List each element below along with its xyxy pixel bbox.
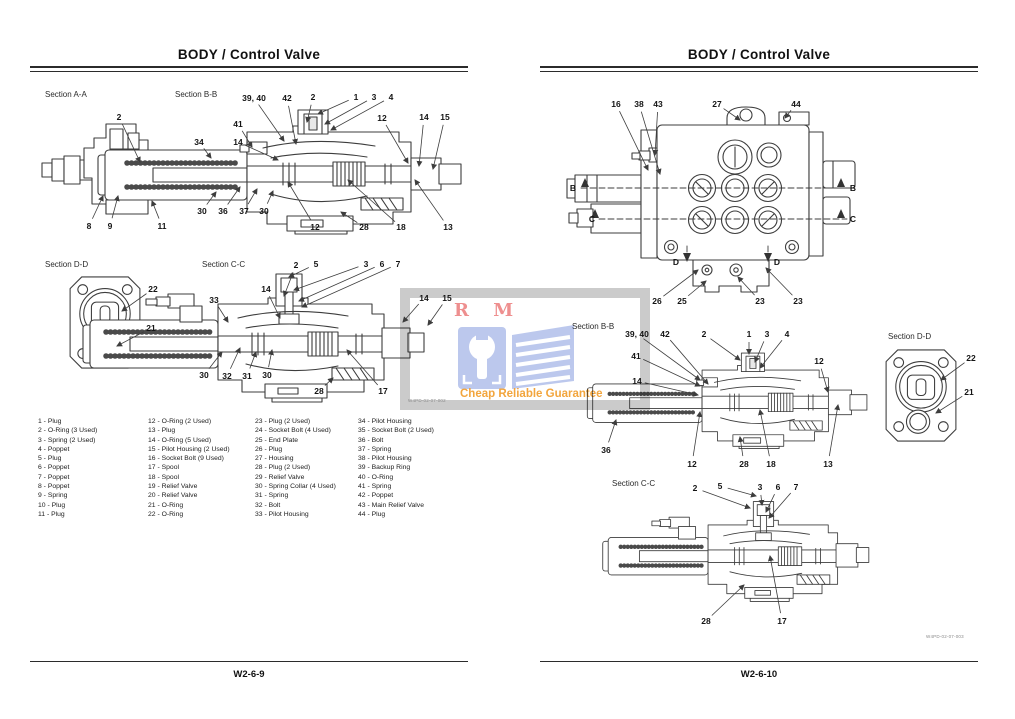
page-number-right: W2-6-10 [540, 669, 978, 680]
part-item: 41 - Spring [358, 482, 473, 491]
page-number-left: W2-6-9 [30, 669, 468, 680]
callout-2: 2 [693, 483, 698, 493]
callout-2: 2 [294, 260, 299, 270]
part-item: 9 - Spring [38, 491, 148, 500]
part-item: 23 - Plug (2 Used) [255, 417, 358, 426]
callout-13: 13 [823, 459, 832, 469]
callout-42: 42 [282, 93, 291, 103]
part-item: 44 - Plug [358, 510, 473, 519]
callout-28: 28 [739, 459, 748, 469]
header-rule-right [540, 66, 978, 72]
callout-3: 3 [364, 259, 369, 269]
part-item: 13 - Plug [148, 426, 255, 435]
section-bb-sketch-left [95, 106, 465, 241]
section-label: Section C-C [612, 479, 655, 488]
parts-column: 34 - Pilot Housing35 - Socket Bolt (2 Us… [358, 417, 473, 519]
part-item: 17 - Spool [148, 463, 255, 472]
watermark-tagline: Cheap Reliable Guarantee [460, 388, 603, 400]
callout-2: 2 [311, 92, 316, 102]
part-item: 42 - Poppet [358, 491, 473, 500]
part-item: 6 - Poppet [38, 463, 148, 472]
callout-7: 7 [794, 482, 799, 492]
section-label: Section C-C [202, 260, 245, 269]
part-item: 2 - O-Ring (3 Used) [38, 426, 148, 435]
part-item: 22 - O-Ring [148, 510, 255, 519]
page-title-right: BODY / Control Valve [540, 47, 978, 62]
part-item: 8 - Poppet [38, 482, 148, 491]
callout-7: 7 [396, 259, 401, 269]
section-dd-sketch-right [884, 348, 958, 443]
external-view-sketch-right [565, 100, 860, 300]
parts-column: 12 - O-Ring (2 Used)13 - Plug14 - O-Ring… [148, 417, 255, 519]
part-item: 20 - Relief Valve [148, 491, 255, 500]
callout-3: 3 [758, 482, 763, 492]
callout-1: 1 [747, 329, 752, 339]
manual-spread: BODY / Control Valve W2-6-9 BODY / Contr… [0, 0, 1015, 719]
drawing-number-right: W4PD-02-07-003 [926, 634, 964, 639]
callout-28: 28 [701, 616, 710, 626]
callout-18: 18 [766, 459, 775, 469]
part-item: 31 - Spring [255, 491, 358, 500]
parts-column: 23 - Plug (2 Used)24 - Socket Bolt (4 Us… [255, 417, 358, 519]
part-item: 30 - Spring Collar (4 Used) [255, 482, 358, 491]
part-item: 7 - Poppet [38, 473, 148, 482]
callout-22: 22 [966, 353, 975, 363]
callout-17: 17 [777, 616, 786, 626]
part-item: 18 - Spool [148, 473, 255, 482]
callout-6: 6 [776, 482, 781, 492]
header-rule-left [30, 66, 468, 72]
callout-39, 40: 39, 40 [242, 93, 266, 103]
callout-1: 1 [354, 92, 359, 102]
watermark: R M Cheap Reliable Guarantee [400, 288, 650, 410]
drawing-number-left: W4PD-02-07-002 [408, 398, 446, 403]
section-cc-sketch-right [600, 500, 870, 603]
part-item: 25 - End Plate [255, 436, 358, 445]
section-label: Section B-B [175, 90, 217, 99]
part-item: 32 - Bolt [255, 501, 358, 510]
part-item: 29 - Relief Valve [255, 473, 358, 482]
callout-5: 5 [314, 259, 319, 269]
page-title-left: BODY / Control Valve [30, 47, 468, 62]
callout-2: 2 [702, 329, 707, 339]
part-item: 26 - Plug [255, 445, 358, 454]
callout-6: 6 [380, 259, 385, 269]
part-item: 24 - Socket Bolt (4 Used) [255, 426, 358, 435]
callout-5: 5 [718, 481, 723, 491]
watermark-brand: R M [454, 300, 522, 321]
part-item: 27 - Housing [255, 454, 358, 463]
part-item: 15 - Pilot Housing (2 Used) [148, 445, 255, 454]
callout-21: 21 [964, 387, 973, 397]
section-label: Section D-D [888, 332, 931, 341]
part-item: 34 - Pilot Housing [358, 417, 473, 426]
callout-12: 12 [687, 459, 696, 469]
part-item: 5 - Plug [38, 454, 148, 463]
footer-rule-right [540, 661, 978, 662]
section-cc-sketch-left [80, 272, 425, 404]
part-item: 21 - O-Ring [148, 501, 255, 510]
callout-3: 3 [765, 329, 770, 339]
part-item: 28 - Plug (2 Used) [255, 463, 358, 472]
callout-4: 4 [785, 329, 790, 339]
callout-3: 3 [372, 92, 377, 102]
callout-42: 42 [660, 329, 669, 339]
part-item: 39 - Backup Ring [358, 463, 473, 472]
footer-rule-left [30, 661, 468, 662]
part-item: 43 - Main Relief Valve [358, 501, 473, 510]
part-item: 38 - Pilot Housing [358, 454, 473, 463]
part-item: 16 - Socket Bolt (9 Used) [148, 454, 255, 463]
part-item: 40 - O-Ring [358, 473, 473, 482]
part-item: 36 - Bolt [358, 436, 473, 445]
part-item: 33 - Pilot Housing [255, 510, 358, 519]
part-item: 12 - O-Ring (2 Used) [148, 417, 255, 426]
part-item: 11 - Plug [38, 510, 148, 519]
part-item: 37 - Spring [358, 445, 473, 454]
section-label: Section D-D [45, 260, 88, 269]
part-item: 10 - Plug [38, 501, 148, 510]
wrench-manual-icon [456, 323, 606, 393]
callout-4: 4 [389, 92, 394, 102]
part-item: 19 - Relief Valve [148, 482, 255, 491]
part-item: 4 - Poppet [38, 445, 148, 454]
part-item: 35 - Socket Bolt (2 Used) [358, 426, 473, 435]
part-item: 14 - O-Ring (5 Used) [148, 436, 255, 445]
part-item: 3 - Spring (2 Used) [38, 436, 148, 445]
part-item: 1 - Plug [38, 417, 148, 426]
parts-column: 1 - Plug2 - O-Ring (3 Used)3 - Spring (2… [38, 417, 148, 519]
parts-list: 1 - Plug2 - O-Ring (3 Used)3 - Spring (2… [38, 417, 473, 519]
section-label: Section A-A [45, 90, 87, 99]
